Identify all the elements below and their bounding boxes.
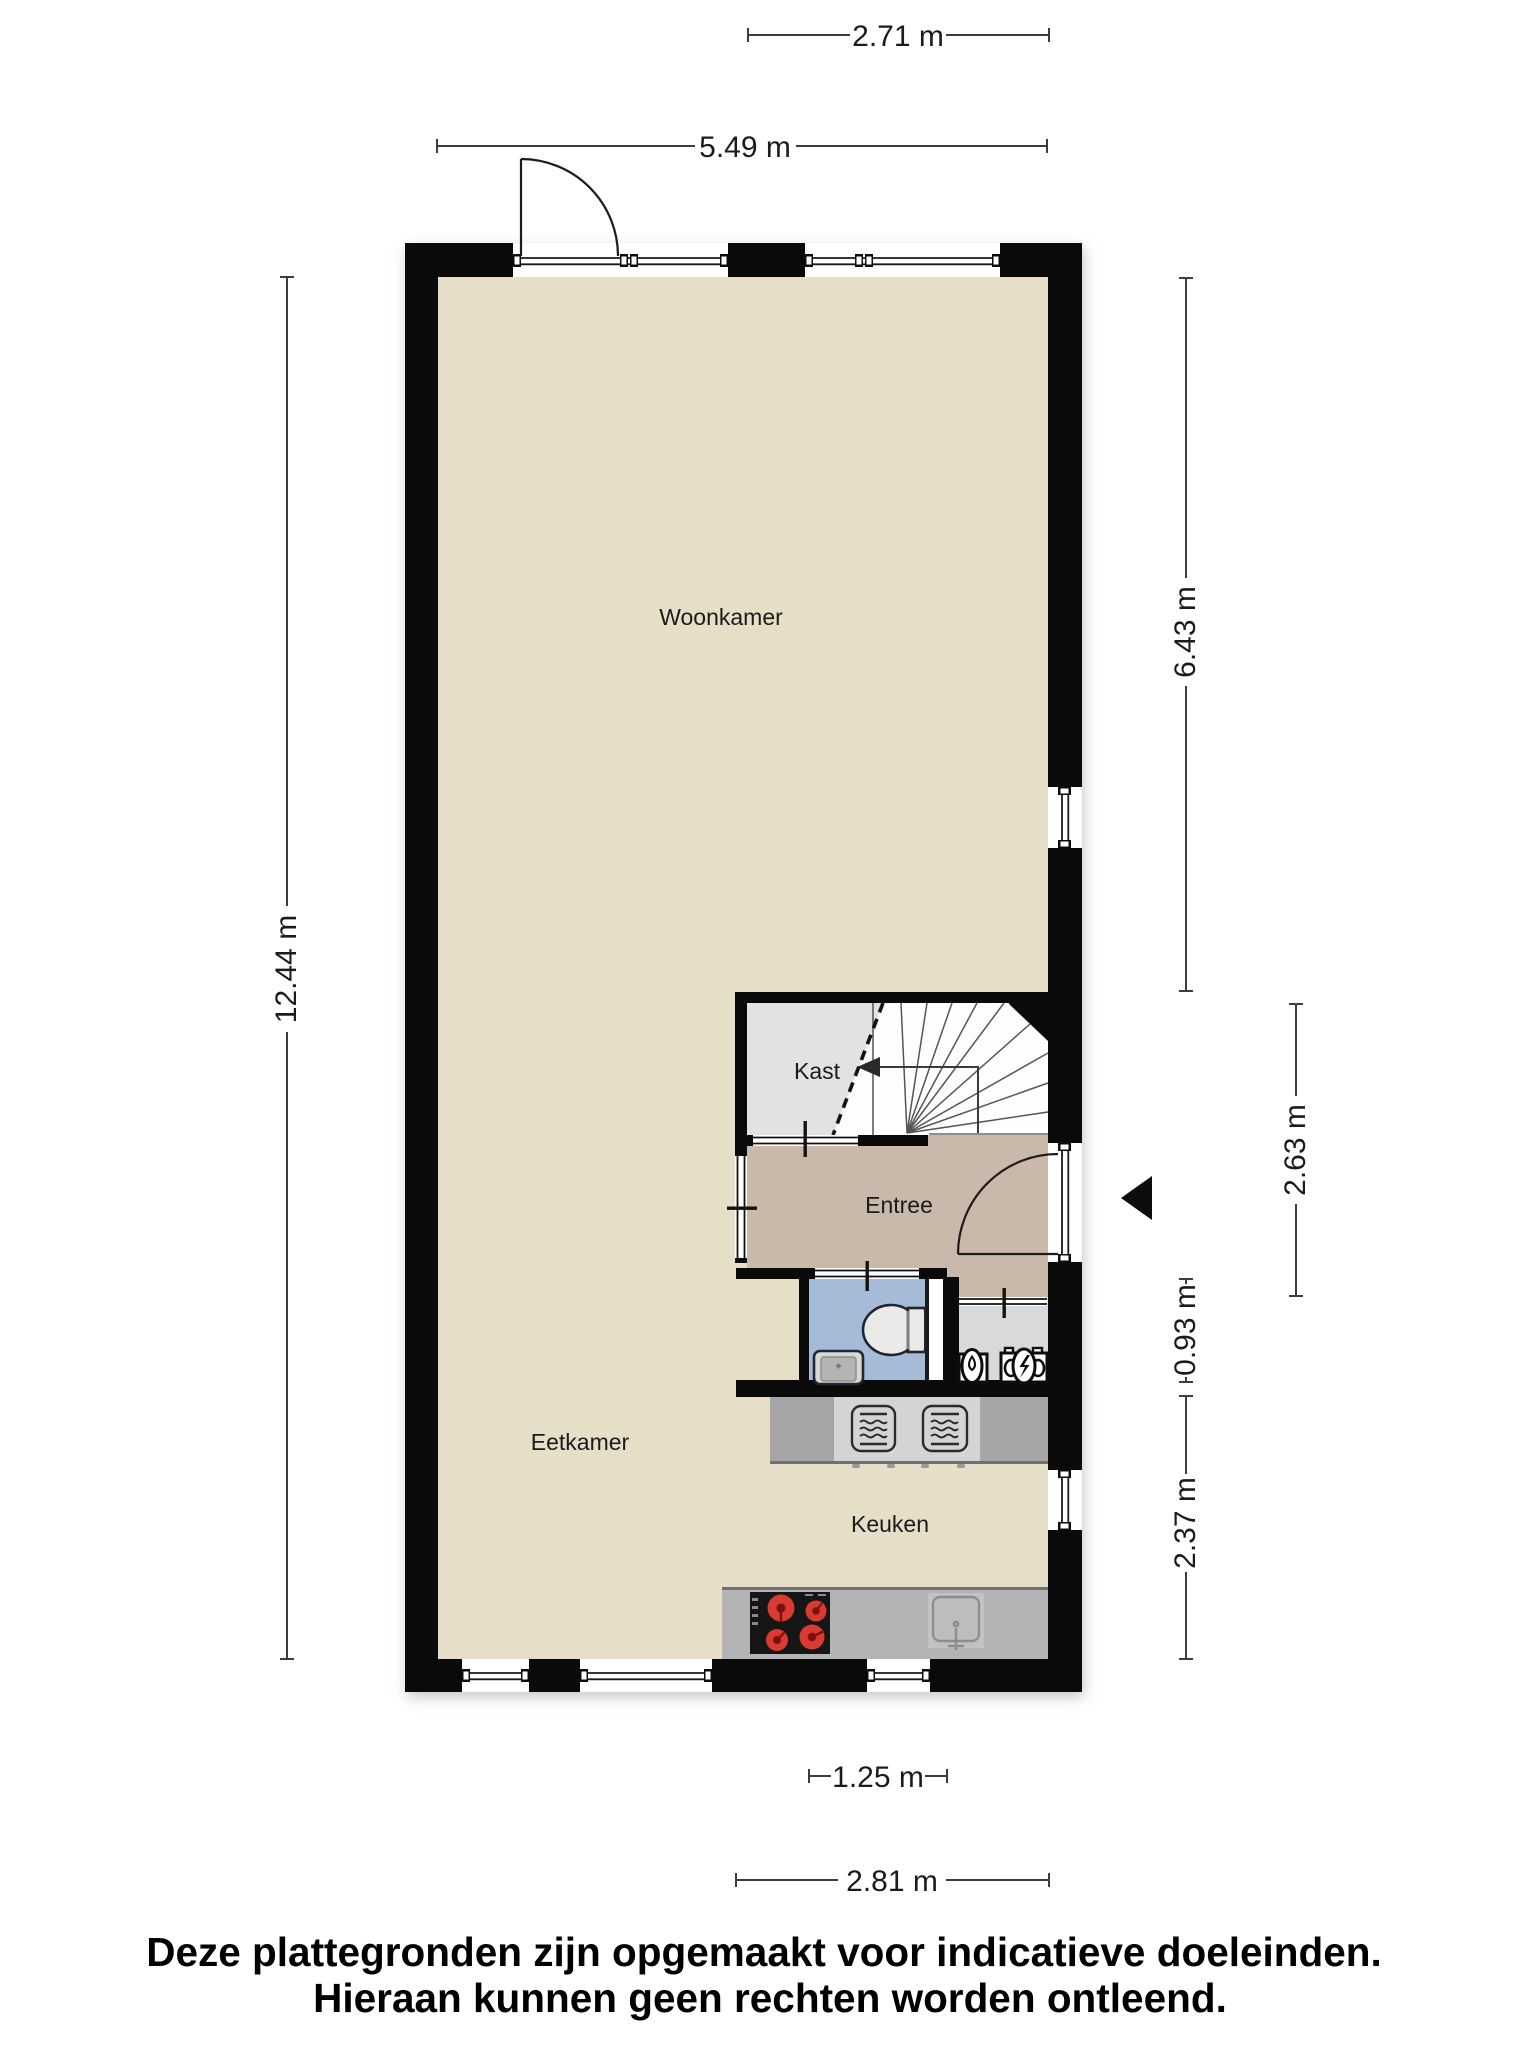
svg-text:2.71 m: 2.71 m <box>852 20 944 53</box>
svg-text:Eetkamer: Eetkamer <box>531 1429 630 1455</box>
svg-text:1.25 m: 1.25 m <box>832 1761 924 1794</box>
svg-text:Deze plattegronden zijn opgema: Deze plattegronden zijn opgemaakt voor i… <box>146 1929 1382 1975</box>
svg-text:Entree: Entree <box>865 1192 933 1218</box>
svg-text:6.43 m: 6.43 m <box>1169 586 1202 678</box>
svg-text:Woonkamer: Woonkamer <box>659 604 783 630</box>
svg-text:5.49 m: 5.49 m <box>699 131 791 164</box>
svg-text:2.37 m: 2.37 m <box>1169 1477 1202 1569</box>
svg-text:12.44 m: 12.44 m <box>270 915 303 1023</box>
svg-text:Keuken: Keuken <box>851 1511 929 1537</box>
svg-text:2.81 m: 2.81 m <box>846 1865 938 1898</box>
svg-text:Hieraan kunnen geen rechten wo: Hieraan kunnen geen rechten worden ontle… <box>313 1975 1227 2021</box>
svg-text:Kast: Kast <box>794 1058 841 1084</box>
svg-text:0.93 m: 0.93 m <box>1169 1284 1202 1376</box>
svg-text:2.63 m: 2.63 m <box>1279 1104 1312 1196</box>
